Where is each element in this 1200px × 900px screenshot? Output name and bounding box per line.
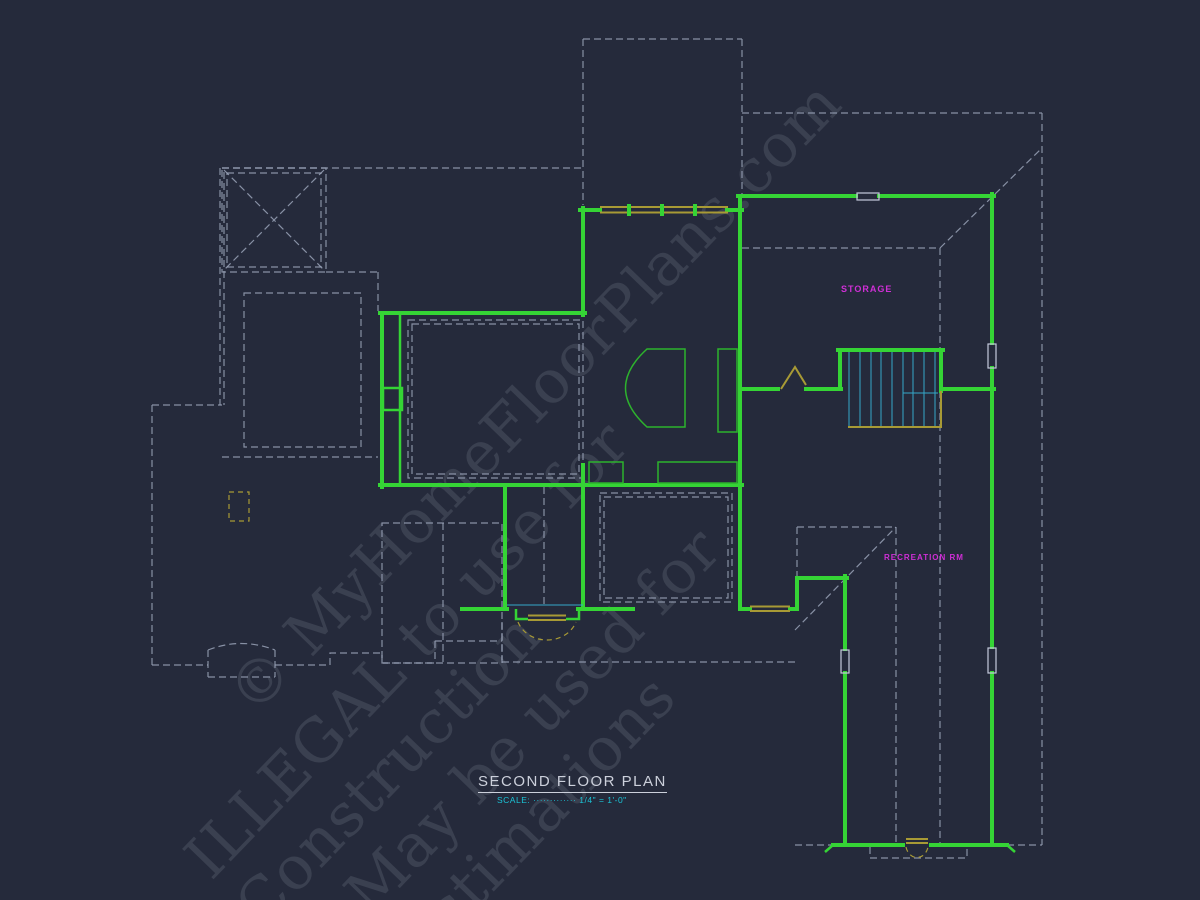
floor-plan-viewport: © MyHomeFloorPlans.com ILLEGAL to use fo… bbox=[0, 0, 1200, 900]
fixtures-layer bbox=[589, 349, 737, 483]
window-left-wing bbox=[841, 650, 849, 673]
stair-treads bbox=[849, 352, 935, 426]
center-window-band bbox=[750, 607, 790, 612]
bay-window-arc bbox=[518, 622, 576, 640]
window-ticks-layer bbox=[841, 193, 996, 673]
window-top bbox=[857, 193, 879, 200]
roof-dashed-layer bbox=[152, 39, 1042, 858]
cabinet-tall bbox=[718, 349, 737, 432]
rear-door-arc bbox=[906, 847, 928, 858]
staircase bbox=[848, 352, 942, 427]
chimney-chase-dashed bbox=[229, 492, 249, 521]
stair-rail bbox=[848, 391, 942, 427]
cabinet-wide bbox=[658, 462, 737, 483]
window-right-lower bbox=[988, 648, 996, 673]
recreation-room-label: RECREATION RM bbox=[884, 553, 964, 562]
curved-fixture bbox=[626, 349, 686, 427]
plan-scale-note: SCALE: ············· 1/4" = 1'-0" bbox=[497, 795, 627, 805]
rear-door bbox=[906, 839, 928, 843]
door-leaf bbox=[781, 367, 806, 389]
storage-room-label: STORAGE bbox=[841, 284, 892, 294]
plan-title: SECOND FLOOR PLAN bbox=[478, 773, 667, 793]
window-right-upper bbox=[988, 344, 996, 368]
cabinet-small bbox=[589, 462, 623, 483]
floor-plan-canvas bbox=[0, 0, 1200, 900]
bay-window-sill bbox=[528, 616, 566, 621]
